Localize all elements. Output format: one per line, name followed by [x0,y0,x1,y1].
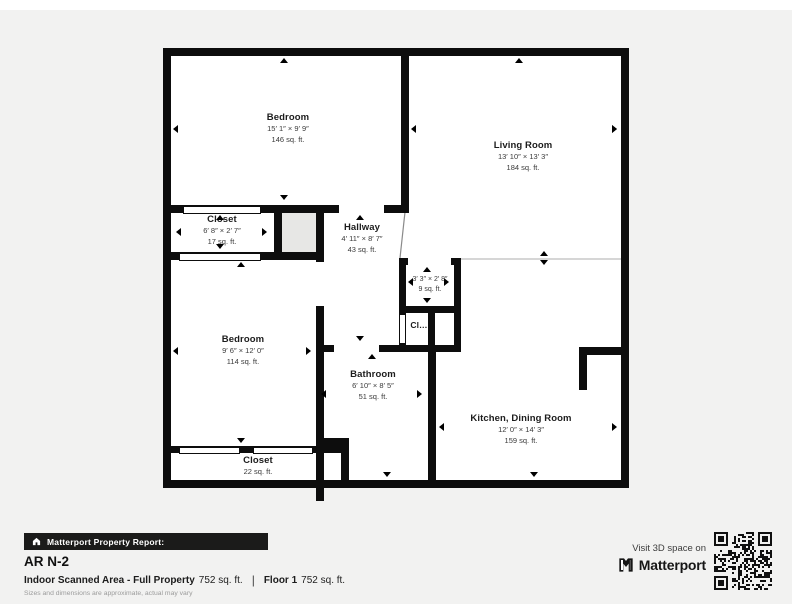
wall [621,48,629,488]
dimension-arrow [237,438,245,443]
wall [163,48,171,488]
floorplan: Bedroom 15′ 1″ × 9′ 9″ 146 sq. ft. Livin… [163,48,629,488]
wall [316,438,349,446]
dimension-arrow [530,472,538,477]
wall [163,480,629,488]
dimension-arrow [540,251,548,256]
dimension-arrow [515,58,523,63]
dimension-arrow [216,215,224,220]
dimension-arrow [612,125,617,133]
separation-lines [163,48,629,488]
dimension-arrow [173,125,178,133]
door-opening [339,205,384,213]
dimension-arrow [356,215,364,220]
sliding-door [253,447,313,454]
dimension-arrow [368,354,376,359]
dimension-arrow [321,390,326,398]
door-opening [316,262,324,306]
dimension-arrow [408,278,413,286]
dimension-arrow [383,472,391,477]
dimension-arrow [439,423,444,431]
door-opening [408,258,451,265]
dimension-arrow [417,390,422,398]
matterport-logo-icon [618,557,634,573]
wall [428,352,436,488]
disclaimer-text: Sizes and dimensions are approximate, ac… [24,590,193,597]
dimension-arrow [216,244,224,249]
dimension-arrow [176,228,181,236]
dimension-arrow [237,262,245,267]
dimension-arrow [173,347,178,355]
dimension-arrow [444,278,449,286]
report-bar-label: Matterport Property Report: [47,537,164,547]
stat-label-full-property: Indoor Scanned Area - Full Property [24,575,195,586]
stat-value-full-property: 752 sq. ft. [199,575,243,586]
dimension-arrow [612,423,617,431]
dimension-arrow [262,228,267,236]
sliding-door [179,447,240,454]
door-opening [334,345,379,352]
wall [163,48,629,56]
area-stats: Indoor Scanned Area - Full Property 752 … [24,573,345,587]
report-title: AR N-2 [24,554,69,569]
wall [428,313,435,345]
dimension-arrow [540,260,548,265]
wall [399,306,461,313]
report-bar: Matterport Property Report: [24,533,268,550]
matterport-logo: Matterport [520,557,706,573]
sliding-door [183,206,261,214]
dimension-arrow [280,58,288,63]
home-icon [32,537,41,546]
dimension-arrow [423,267,431,272]
dimension-arrow [356,336,364,341]
dimension-arrow [306,347,311,355]
stat-value-floor-1: 752 sq. ft. [301,575,345,586]
wall [401,48,409,212]
qr-code [714,532,772,590]
page: Bedroom 15′ 1″ × 9′ 9″ 146 sq. ft. Livin… [0,0,792,612]
dimension-arrow [280,195,288,200]
door-opening [400,315,405,343]
stat-separator: | [252,573,255,587]
wall [579,347,587,390]
stat-label-floor-1: Floor 1 [264,575,297,586]
wall [341,446,349,488]
dimension-arrow [411,125,416,133]
sliding-door [179,253,261,261]
visit-3d-cta: Visit 3D space on [540,543,706,554]
wall [454,258,461,352]
wall [274,205,282,260]
matterport-logo-text: Matterport [639,557,706,573]
wall [316,205,324,501]
dimension-arrow [423,298,431,303]
